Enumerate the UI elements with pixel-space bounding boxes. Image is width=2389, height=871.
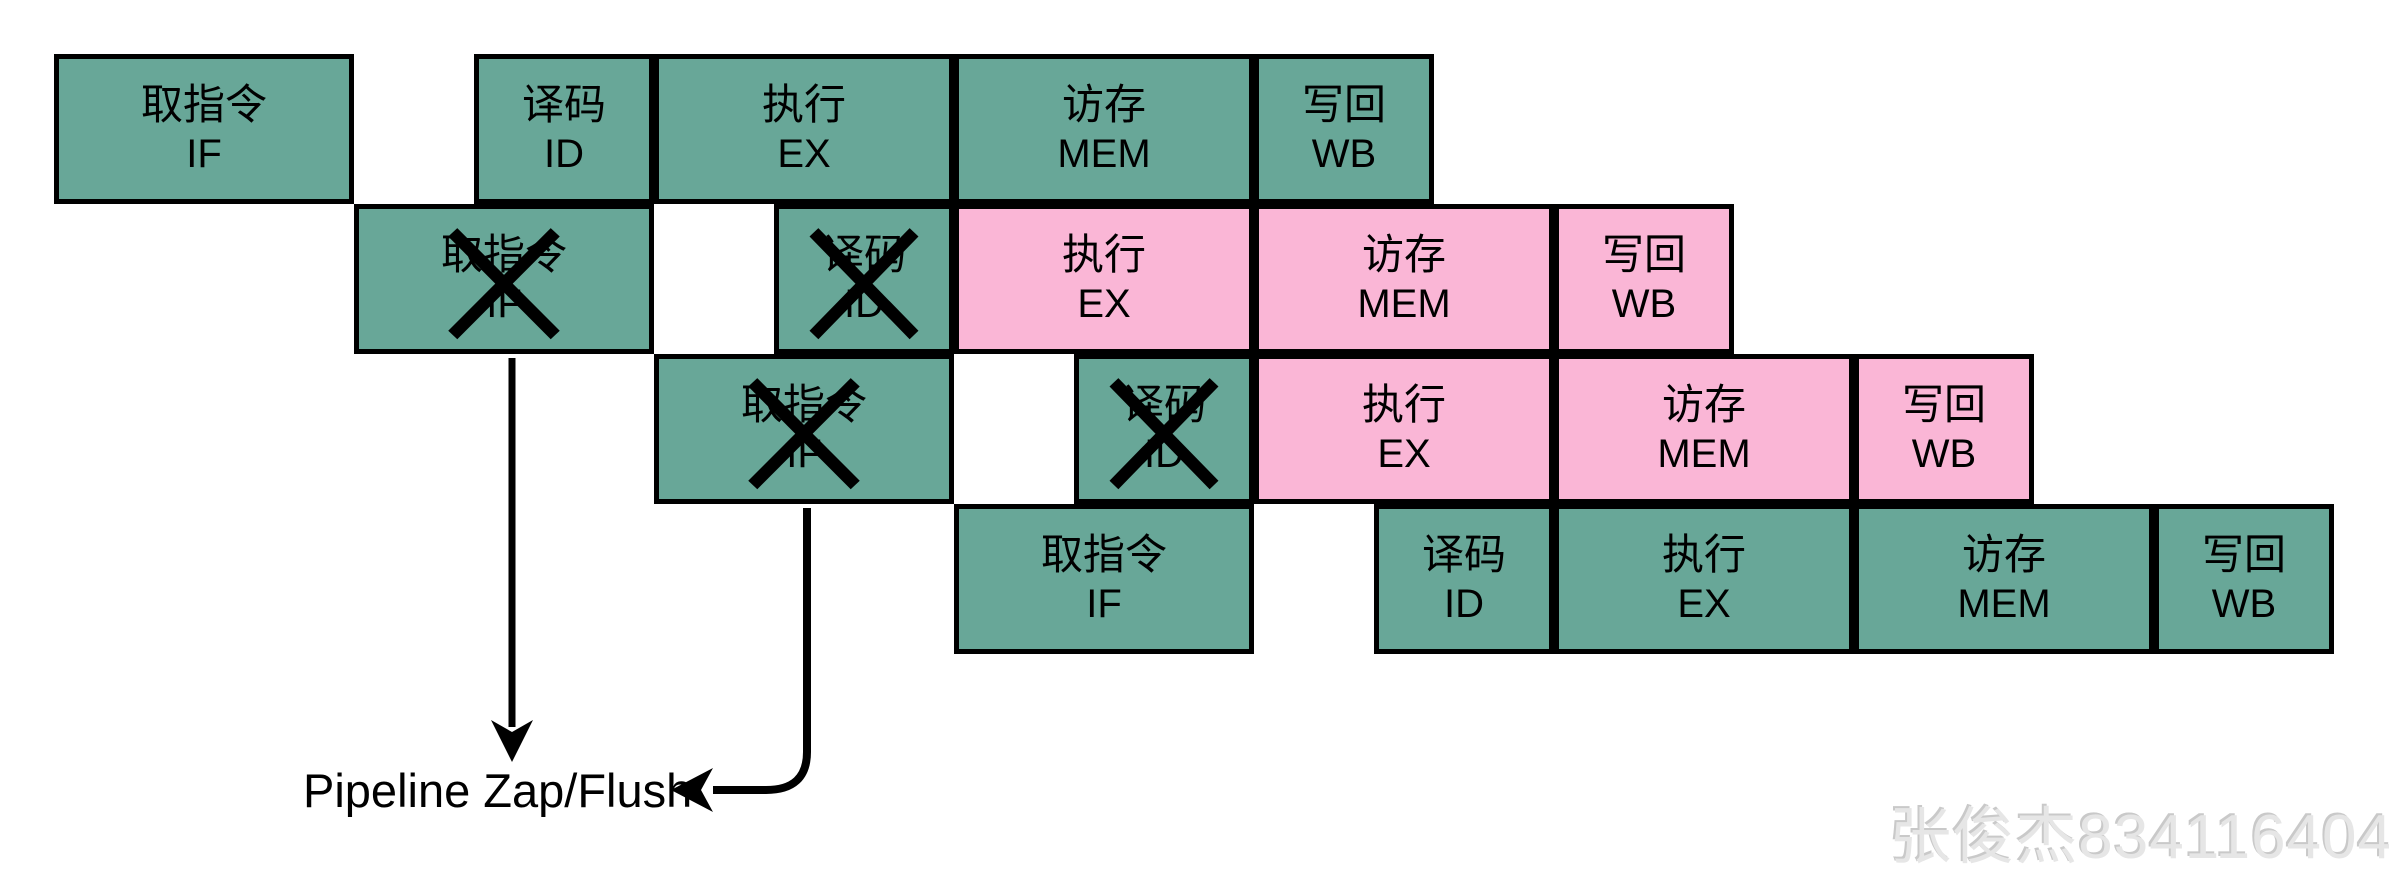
watermark-text: 张俊杰834116404 [1889,786,2389,871]
flush-arrow-curved-shaft [713,508,807,790]
flush-arrows [0,0,2389,871]
pipeline-diagram: 取指令IF译码ID执行EX访存MEM写回WB取指令IF译码ID执行EX访存MEM… [0,0,2389,871]
pipeline-flush-label: Pipeline Zap/Flush [303,763,692,818]
flush-arrow-from-instruction-2 [491,358,533,762]
